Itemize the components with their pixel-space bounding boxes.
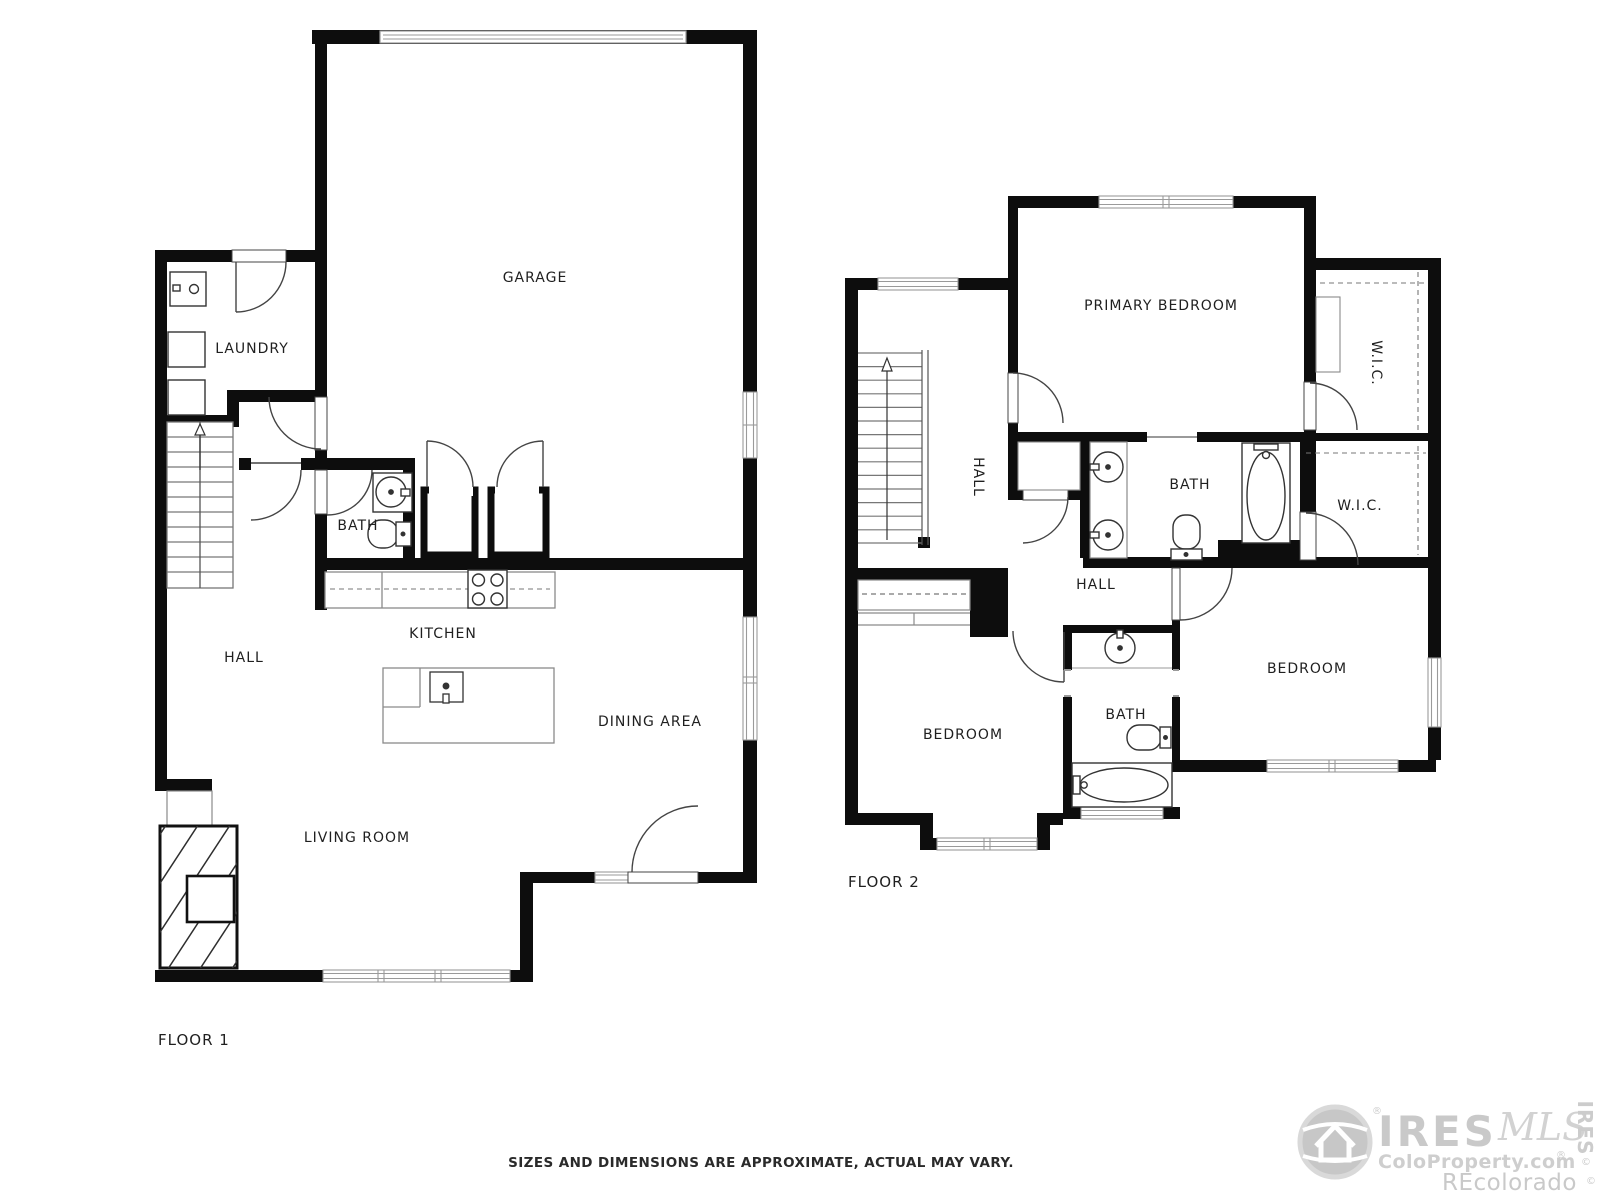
island-sink-icon [430, 672, 463, 703]
window [1267, 760, 1398, 772]
window [937, 838, 1037, 850]
disclaimer-text: SIZES AND DIMENSIONS ARE APPROXIMATE, AC… [508, 1155, 1014, 1171]
copyright-mark: © [1581, 1157, 1591, 1168]
room-label-hall1: HALL [224, 650, 264, 666]
page-background [0, 0, 1600, 1200]
stairs-floor1 [167, 422, 233, 588]
closet-shelf [1316, 297, 1340, 372]
garage-door [380, 31, 686, 43]
window [743, 617, 757, 740]
room-label-hall-upper: HALL [970, 457, 986, 497]
room-label-primary-bedroom: PRIMARY BEDROOM [1084, 298, 1238, 314]
stove-icon [468, 570, 507, 608]
watermark-brand: IRES [1378, 1107, 1497, 1156]
washer-icon [170, 272, 206, 306]
room-label-wic-lower: W.I.C. [1337, 498, 1383, 514]
window [743, 392, 757, 458]
room-label-living: LIVING ROOM [304, 830, 410, 846]
window [595, 872, 628, 883]
kitchen-counter [325, 572, 555, 608]
linen-closet [1018, 442, 1080, 490]
watermark-recolorado: REcolorado [1442, 1170, 1577, 1196]
room-label-bath-small: BATH [1105, 707, 1146, 723]
toilet-icon [1127, 725, 1171, 750]
floor1-title: FLOOR 1 [158, 1031, 230, 1049]
room-label-kitchen: KITCHEN [409, 626, 477, 642]
window [1081, 807, 1163, 819]
room-label-bedroom-left: BEDROOM [923, 727, 1003, 743]
floor2-title: FLOOR 2 [848, 873, 920, 891]
floor-plan-canvas: GARAGE LAUNDRY BATH KITCHEN HALL DINING … [0, 0, 1600, 1200]
kitchen-island [383, 668, 554, 743]
sink-icon [373, 473, 412, 512]
window [1099, 196, 1233, 208]
floorplan-document: GARAGE LAUNDRY BATH KITCHEN HALL DINING … [0, 0, 1600, 1200]
room-label-wic-upper: W.I.C. [1368, 340, 1384, 386]
bathtub-icon [1072, 763, 1172, 807]
room-label-hall-lower: HALL [1076, 577, 1116, 593]
window [323, 970, 510, 982]
room-label-bath-primary: BATH [1169, 477, 1210, 493]
room-label-laundry: LAUNDRY [215, 341, 289, 357]
copyright-mark: © [1586, 1176, 1596, 1187]
vanity-double-sink [1090, 442, 1127, 558]
registered-mark: ® [1556, 1150, 1566, 1161]
room-label-dining: DINING AREA [598, 714, 702, 730]
watermark-side-brand: IRES [1573, 1101, 1597, 1156]
room-label-bath1: BATH [337, 518, 378, 534]
room-label-garage: GARAGE [503, 270, 568, 286]
room-label-bedroom-right: BEDROOM [1267, 661, 1347, 677]
window [1428, 658, 1441, 727]
window [878, 278, 958, 290]
ires-house-icon [1300, 1107, 1370, 1177]
bathtub-icon [1242, 443, 1290, 543]
toilet-icon [1171, 515, 1202, 560]
